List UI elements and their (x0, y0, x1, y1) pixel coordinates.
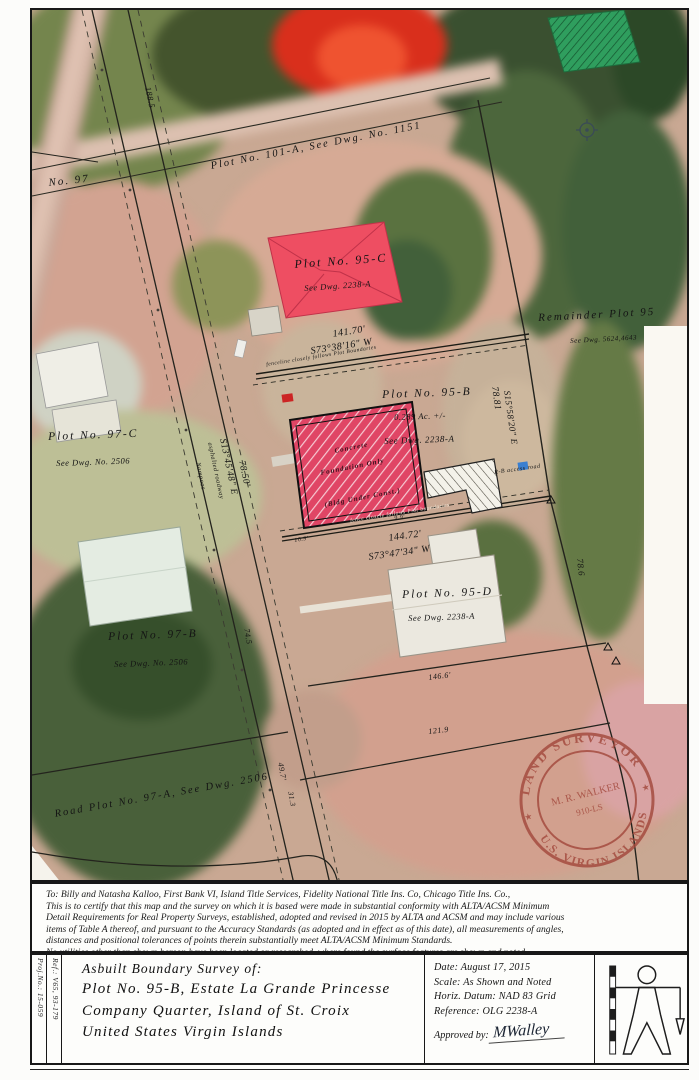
drawing-info: Date: August 17, 2015 Scale: As Shown an… (425, 955, 595, 1063)
map-label: See Dwg. 2238-A (408, 612, 475, 623)
reference-number: Ref.: V65, 93-179 (47, 955, 62, 1063)
border-line (30, 1069, 689, 1070)
survey-sheet: No. 97Plot No. 101-A, See Dwg. No. 11511… (0, 0, 699, 1080)
title-line: Plot No. 95-B, Estate La Grande Princess… (82, 981, 424, 998)
map-label: 146.6' (428, 671, 452, 682)
drawing-title: Asbuilt Boundary Survey of: Plot No. 95-… (62, 955, 425, 1063)
map-label: Nampoos (194, 462, 206, 491)
map-label: Foundation Only (320, 458, 385, 477)
plumb-bob-arrow-icon (676, 1019, 684, 1035)
map-label: See Dwg. 2238-A (304, 279, 371, 292)
seal-bottom-text: U.S. VIRGIN ISLANDS (536, 808, 660, 882)
map-label: No. 97 (48, 174, 90, 189)
map-label: Plot No. 95-B (382, 387, 472, 402)
svg-text:U.S. VIRGIN ISLANDS: U.S. VIRGIN ISLANDS (536, 808, 660, 882)
map-label: Plot No. 95-D (402, 587, 493, 602)
map-label: Plot No. 95-C (294, 252, 388, 270)
certification-line: distances and positional tolerances of p… (46, 935, 673, 947)
svg-text:LAND SURVEYOR: LAND SURVEYOR (506, 722, 648, 800)
map-label: 121.9 (428, 726, 449, 736)
map-label: Plot No. 97-C (48, 429, 139, 444)
seal-top-text: LAND SURVEYOR (506, 722, 648, 800)
figure-body (623, 988, 670, 1054)
certification-block: To: Billy and Natasha Kalloo, First Bank… (30, 882, 689, 953)
map-label: 74.5 (242, 628, 253, 645)
title-line: Asbuilt Boundary Survey of: (82, 961, 424, 977)
map-label: See Dwg. 5624,4643 (570, 334, 637, 344)
map-label: 78.6 (575, 558, 586, 577)
map-label: See Dwg. 2238-A (384, 435, 455, 446)
map-label: 78.50' (236, 460, 251, 488)
approved-by-label: Approved by: (434, 1030, 489, 1041)
map-label: Plot No. 101-A, See Dwg. No. 1151 (210, 121, 423, 172)
map-label: Road Plot No. 97-A, See Dwg. 2506 (54, 772, 270, 820)
scale-field: Scale: As Shown and Noted (434, 977, 587, 988)
datum-field: Horiz. Datum: NAD 83 Grid (434, 991, 587, 1002)
map-label: S73°47'34" W (368, 544, 431, 563)
aerial-photo-map: No. 97Plot No. 101-A, See Dwg. No. 11511… (30, 8, 689, 882)
map-label: Concrete (334, 442, 369, 455)
map-label: 10.9' (294, 536, 309, 544)
map-label: 188.5 (144, 86, 157, 109)
title-line: Company Quarter, Island of St. Croix (82, 1003, 424, 1020)
map-label: 49.7' (276, 762, 287, 781)
map-label: Plot No. 97-B (108, 629, 198, 644)
title-line: United States Virgin Islands (82, 1024, 424, 1041)
surveyor-seal: LAND SURVEYOR U.S. VIRGIN ISLANDS M. R. … (502, 722, 672, 882)
map-label: 144.72' (388, 529, 422, 544)
approval-signature: MWalley (489, 1019, 566, 1043)
map-label: See Dwg. No. 2506 (114, 657, 188, 668)
figure-head (638, 966, 656, 984)
surveyor-logo (595, 955, 687, 1063)
map-label: R-B access road (494, 464, 541, 476)
map-label: See Dwg. No. 2506 (56, 456, 130, 467)
certification-line: Detail Requirements for Real Property Su… (46, 912, 673, 924)
map-label: S15°58'20" E (502, 390, 519, 445)
map-label: (Bldg Under Const.) (324, 487, 401, 509)
certification-line: items of Table A thereof, and pursuant t… (46, 924, 673, 936)
map-label: 0.289 Ac. +/- (394, 411, 446, 421)
map-label: Remainder Plot 95 (538, 307, 656, 324)
map-label: fence closely follows Plot boundaries (350, 503, 450, 524)
date-field: Date: August 17, 2015 (434, 962, 587, 973)
reference-field: Reference: OLG 2238-A (434, 1006, 587, 1017)
map-label: 78.81 (489, 386, 502, 411)
title-block: Proj.No.: 15-059 Ref.: V65, 93-179 Asbui… (30, 953, 689, 1065)
seal-star-left: ★ (523, 811, 533, 823)
certification-line: To: Billy and Natasha Kalloo, First Bank… (46, 889, 673, 901)
certification-line: This is to certify that this map and the… (46, 901, 673, 913)
seal-name: M. R. WALKER (550, 781, 621, 809)
seal-license: 910-LS (575, 802, 604, 818)
project-number: Proj.No.: 15-059 (32, 955, 47, 1063)
certification-text: To: Billy and Natasha Kalloo, First Bank… (46, 889, 673, 958)
map-label: 31.3 (287, 791, 297, 807)
